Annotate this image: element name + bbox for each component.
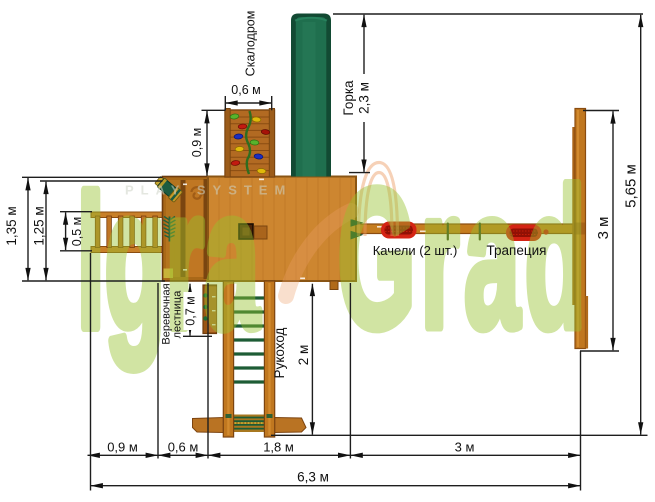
svg-text:5,65 м: 5,65 м [623,164,640,208]
svg-text:0,6 м: 0,6 м [168,440,199,455]
svg-text:Качели (2 шт.): Качели (2 шт.) [373,243,458,258]
svg-text:0,5 м: 0,5 м [70,217,84,246]
svg-text:Grad: Grad [338,149,591,370]
svg-text:0,6 м: 0,6 м [231,83,260,97]
svg-text:Скалодром: Скалодром [244,11,258,77]
svg-text:0,9 м: 0,9 м [107,440,138,455]
svg-text:лестница: лестница [172,290,184,339]
svg-text:Горка: Горка [341,80,356,116]
svg-text:1,35 м: 1,35 м [4,206,19,245]
svg-text:Трапеция: Трапеция [487,243,547,258]
svg-text:3 м: 3 м [455,440,475,455]
svg-text:6,3 м: 6,3 м [297,470,329,485]
svg-text:2 м: 2 м [296,345,311,366]
svg-text:0,9 м: 0,9 м [190,128,204,157]
svg-text:0,7 м: 0,7 м [184,296,198,325]
svg-text:1,8 м: 1,8 м [263,440,294,455]
svg-text:3 м: 3 м [595,217,612,240]
svg-text:Рукоход: Рукоход [272,327,287,378]
svg-text:1,25 м: 1,25 м [32,206,47,245]
svg-text:2,3 м: 2,3 м [357,82,372,114]
